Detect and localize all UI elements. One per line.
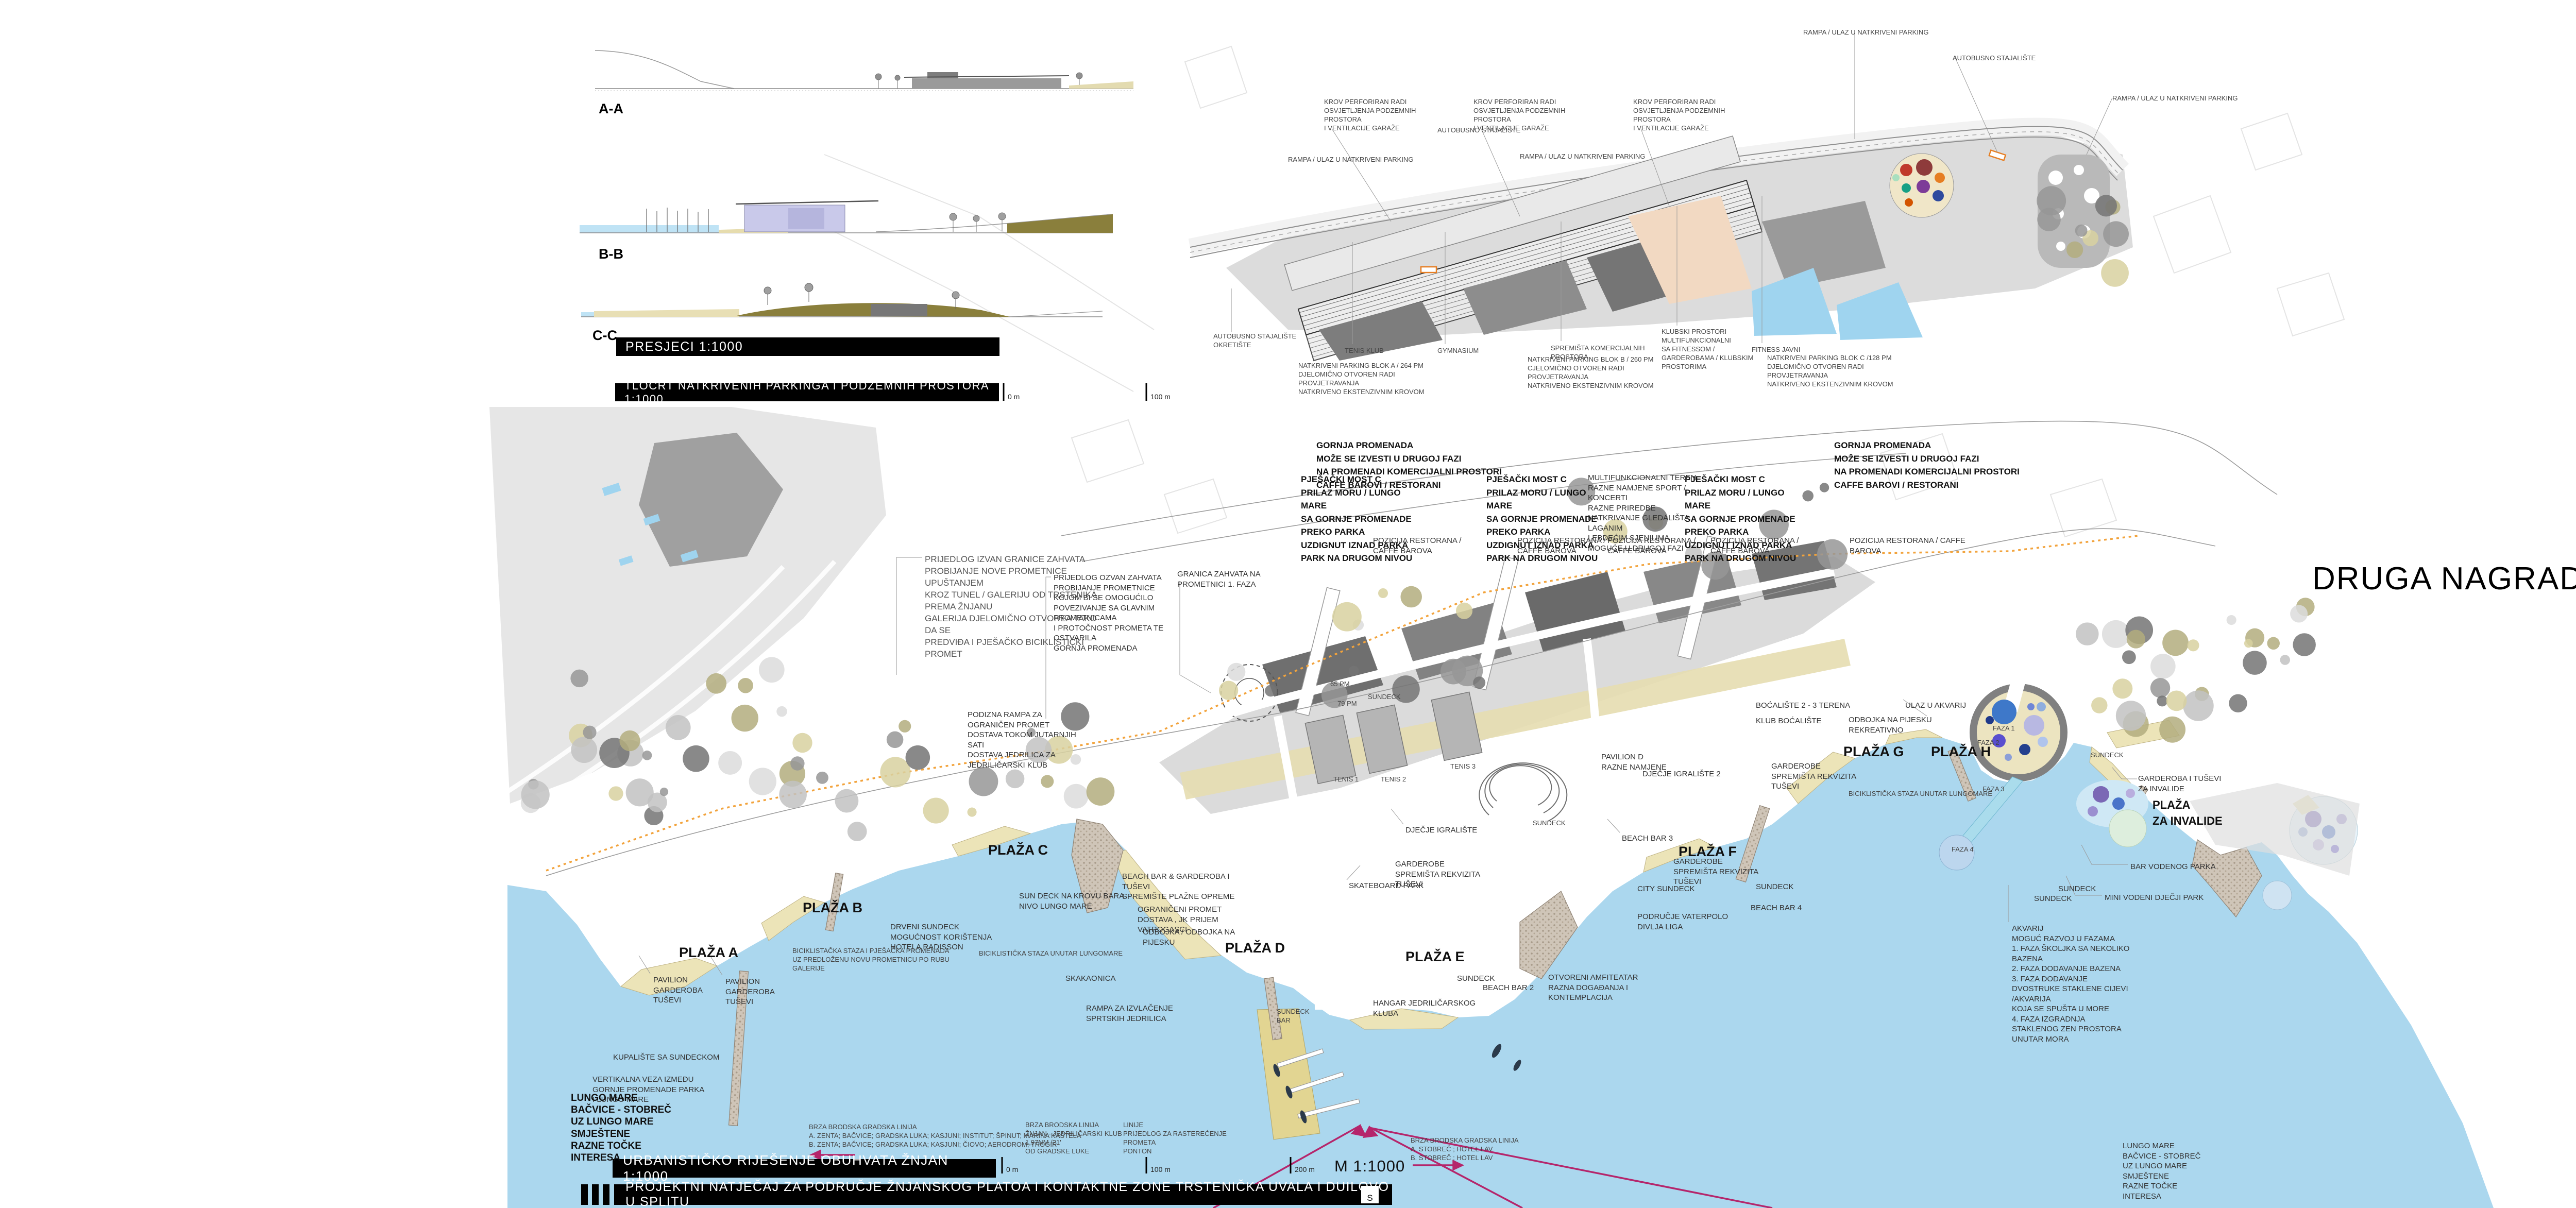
plan-label: AUTOBUSNO STAJALIŠTE OKRETIŠTE	[1213, 332, 1296, 350]
plan-label: LINIJE PRIJEDLOG ZA RASTEREĆENJE PROMETA…	[1123, 1121, 1227, 1156]
plan-label: LUNGO MARE BAČVICE - STOBREČ UZ LUNGO MA…	[571, 1092, 671, 1164]
plan-label: PLAŽA A	[679, 944, 738, 962]
plan-label: KLUBSKI PROSTORI MULTIFUNKCIONALNI SA FI…	[1662, 328, 1753, 371]
plan-label: POZICIJA RESTORANA / CAFFE BAROVA	[1710, 536, 1799, 556]
plan-label: ULAZ U AKVARIJ	[1905, 701, 1966, 711]
plan-label: SKATEBOARD PARK	[1349, 881, 1423, 891]
footer-tick-0: 0 m	[1006, 1165, 1018, 1173]
plan-label: SUNDECK	[1533, 819, 1566, 828]
section-label-cc: C-C	[592, 328, 617, 344]
plan-label: SUNDECK	[1457, 974, 1495, 984]
section-label-bb: B-B	[599, 246, 623, 262]
footer-glyph-bars	[581, 1184, 609, 1205]
plan-label: SKAKAONICA	[1065, 974, 1116, 984]
plan-label: PLAŽA G	[1843, 743, 1904, 761]
plan-label: POZICIJA RESTORANA / CAFFE BAROVA	[1850, 536, 1965, 556]
plan-label: BICIKLISTIČKA STAZA UNUTAR LUNGOMARE	[979, 949, 1123, 958]
plan-label: SUNDECK	[2091, 751, 2124, 760]
plan-label: PLAŽA B	[803, 899, 862, 917]
presjeci-title-bar: PRESJECI 1:1000	[616, 337, 999, 356]
plan-label: FAZA 4	[1952, 845, 1974, 854]
plan-label: GORNJA PROMENADA MOŽE SE IZVESTI U DRUGO…	[1834, 439, 2020, 491]
plan-label: MINI VODENI DJEČJI PARK	[2105, 893, 2204, 903]
plan-label: KLUB BOĆALIŠTE	[1756, 716, 1822, 726]
section-cc-drawing	[581, 283, 1103, 317]
plan-label: PLAŽA C	[988, 841, 1048, 859]
plan-label: BAR VODENOG PARKA	[2130, 862, 2216, 872]
plan-label: POZICIJA RESTORANA / CAFFE BAROVA	[1607, 536, 1696, 556]
plan-label: NATKRIVENI PARKING BLOK A / 264 PM DJELO…	[1298, 362, 1425, 397]
plan-label: NATKRIVENI PARKING BLOK C /128 PM DJELOM…	[1767, 354, 1893, 389]
plan-label: GARDEROBE SPREMIŠTA REKVIZITA TUŠEVI	[1673, 857, 1758, 887]
plan-label: 65 PM	[1330, 680, 1350, 689]
plan-label: GARDEROBE SPREMIŠTA REKVIZITA TUŠEVI	[1771, 761, 1856, 792]
plan-label: PAVILION GARDEROBA TUŠEVI	[725, 977, 775, 1007]
plan-label: BOĆALIŠTE 2 - 3 TERENA	[1756, 701, 1850, 711]
plan-label: OTVORENI AMFITEATAR RAZNA DOGAĐANJA I KO…	[1548, 973, 1638, 1003]
plan-label: GRANICA ZAHVATA NA PROMETNICI 1. FAZA	[1177, 569, 1261, 589]
projektni-title-bar: PROJEKTNI NATJEČAJ ZA PODRUČJE ŽNJANSKOG…	[614, 1184, 1392, 1205]
award-title: DRUGA NAGRADA	[2312, 560, 2576, 597]
plan-label: BEACH BAR & GARDEROBA I TUŠEVI SPREMIŠTE…	[1122, 872, 1234, 902]
plan-label: PODIZNA RAMPA ZA OGRANIČEN PROMET DOSTAV…	[968, 710, 1076, 770]
section-aa-drawing	[595, 50, 1133, 91]
plan-label: CITY SUNDECK	[1637, 884, 1694, 894]
plan-label: ODBOJKA / ODBOJKA NA PIJESKU	[1143, 927, 1235, 947]
plan-label: NATKRIVENI PARKING BLOK B / 260 PM CJELO…	[1528, 355, 1654, 390]
tlocrt-title-bar: TLOCRT NATKRIVENIH PARKINGA I PODZEMNIH …	[615, 383, 999, 401]
plan-label: TENIS 3	[1450, 762, 1476, 771]
footer-tick-200: 200 m	[1295, 1165, 1315, 1173]
parking-plan	[1190, 32, 2133, 361]
plan-label: BICIKLISTAČKA STAZA I PJEŠAČKA PROMENADA…	[792, 947, 950, 973]
plan-label: DJEČJE IGRALIŠTE	[1405, 825, 1477, 836]
plan-label: HANGAR JEDRILIČARSKOG KLUBA	[1373, 998, 1476, 1018]
plan-label: BICIKLISTIČKA STAZA UNUTAR LUNGOMARE	[1849, 790, 1992, 798]
plan-label: RAMPA / ULAZ U NATKRIVENI PARKING	[2112, 94, 2238, 103]
plan-label: ODBOJKA NA PIJESKU REKREATIVNO	[1849, 715, 1932, 735]
plan-label: AUTOBUSNO STAJALIŠTE	[1953, 54, 2036, 63]
plan-label: PLAŽA E	[1405, 948, 1465, 966]
north-box: S	[1361, 1186, 1379, 1203]
plan-label: KUPALIŠTE SA SUNDECKOM	[613, 1052, 719, 1063]
tlocrt-tick-0: 0 m	[1008, 393, 1020, 401]
plan-label: BEACH BAR 2	[1483, 983, 1534, 993]
plan-label: DJEČJE IGRALIŠTE 2	[1642, 769, 1721, 779]
plan-label: GYMNASIUM	[1437, 347, 1479, 355]
tlocrt-tick-100: 100 m	[1150, 393, 1171, 401]
section-label-aa: A-A	[599, 101, 623, 117]
plan-label: FAZA 3	[1982, 785, 2005, 794]
plan-label: RAMPA / ULAZ U NATKRIVENI PARKING	[1803, 28, 1928, 37]
plan-label: PODRUČJE VATERPOLO DIVLJA LIGA	[1637, 912, 1728, 932]
plan-label: SUNDECK	[2058, 884, 2096, 894]
map-scale: M 1:1000	[1334, 1157, 1405, 1176]
plan-label: AUTOBUSNO STAJALIŠTE	[1437, 126, 1520, 135]
plan-label: KROV PERFORIRAN RADI OSVJETLJENJA PODZEM…	[1633, 98, 1725, 133]
plan-label: FAZA 1	[1993, 724, 2015, 733]
plan-label: POZICIJA RESTORANA / CAFFE BAROVA	[1373, 536, 1461, 556]
plan-label: FITNESS JAVNI	[1752, 346, 1800, 354]
plan-label: 79 PM	[1337, 700, 1357, 708]
competition-board: A-A B-B C-C PRESJECI 1:1000 TLOCRT NATKR…	[0, 0, 2576, 1208]
plan-label: AKVARIJ MOGUĆ RAZVOJ U FAZAMA 1. FAZA ŠK…	[2012, 924, 2129, 1044]
section-bb-drawing	[580, 201, 1113, 233]
plan-label: SUNDECK BAR	[1277, 1008, 1310, 1025]
plan-label: RAMPA / ULAZ U NATKRIVENI PARKING	[1288, 156, 1413, 164]
plan-label: KROV PERFORIRAN RADI OSVJETLJENJA PODZEM…	[1324, 98, 1416, 133]
plan-label: BEACH BAR 4	[1751, 903, 1802, 913]
plan-label: POZICIJA RESTORANA / CAFFE BAROVA	[1517, 536, 1605, 556]
plan-label: PRIJEDLOG OZVAN ZAHVATA PROBIJANJE PROME…	[1054, 573, 1163, 653]
plan-label: SUNDECK	[2034, 894, 2072, 904]
plan-label: RAMPA ZA IZVLAČENJE SPRTSKIH JEDRILICA	[1086, 1003, 1173, 1024]
plan-label: TENIS KLUB	[1345, 347, 1384, 355]
plan-label: SUN DECK NA KROVU BARA NIVO LUNGO MARE	[1019, 891, 1124, 911]
plan-label: SUNDECK	[1756, 882, 1793, 892]
plan-label: PLAŽA ZA INVALIDE	[2153, 797, 2223, 829]
plan-label: BRZA BRODSKA LINIJA ŽNJAN - JEDRILIČARSK…	[1025, 1121, 1122, 1156]
plan-label: FAZA 2	[1977, 739, 1999, 747]
plan-label: RAMPA / ULAZ U NATKRIVENI PARKING	[1520, 152, 1645, 161]
plan-label: BRZA BRODSKA GRADSKA LINIJA A. STOBREČ ;…	[1411, 1136, 1519, 1163]
plan-label: GARDEROBA I TUŠEVI ZA INVALIDE	[2138, 774, 2221, 794]
plan-label: LUNGO MARE BAČVICE - STOBREČ UZ LUNGO MA…	[2123, 1141, 2200, 1201]
plan-label: PAVILION GARDEROBA TUŠEVI	[653, 975, 703, 1006]
footer-tick-100: 100 m	[1150, 1165, 1171, 1173]
site-plan-drawing	[0, 0, 2576, 1208]
plan-label: SUNDECK	[1368, 693, 1401, 702]
plan-label: TENIS 1	[1333, 775, 1359, 784]
plan-label: TENIS 2	[1381, 775, 1406, 784]
plan-label: BEACH BAR 3	[1622, 833, 1673, 844]
